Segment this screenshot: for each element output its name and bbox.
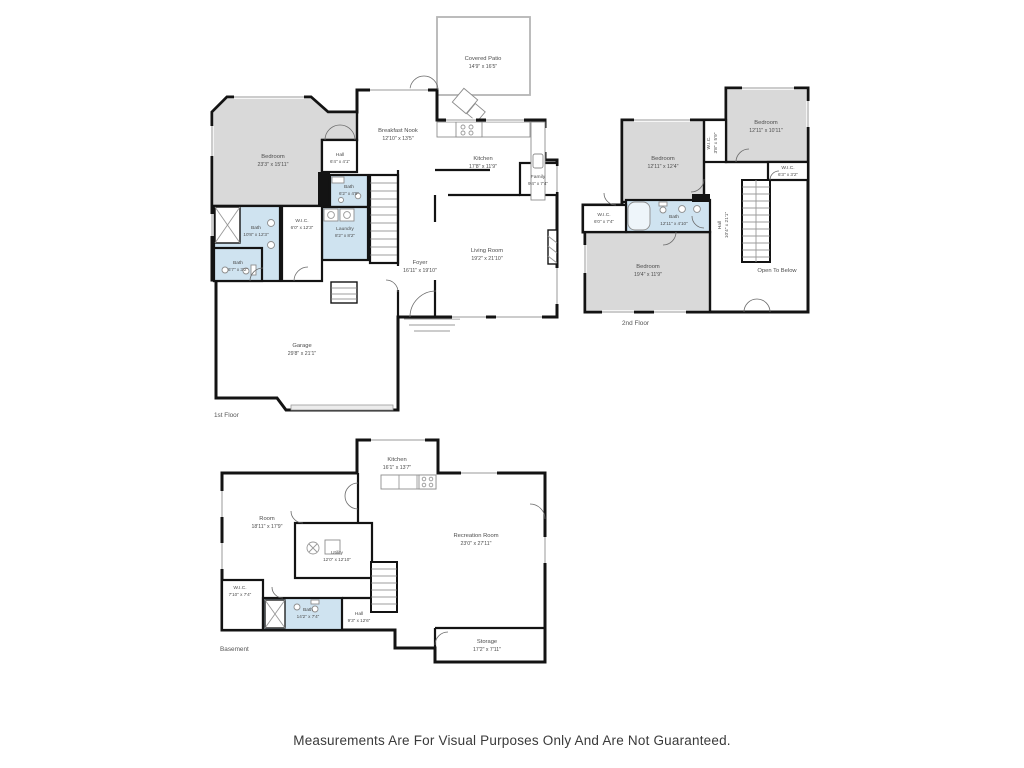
room-label: Foyer <box>413 260 428 266</box>
stairs-icon <box>371 562 397 612</box>
basement-stair-icon <box>331 282 357 303</box>
floor-name: Basement <box>220 646 249 653</box>
room-label: Open To Below <box>757 268 797 274</box>
room-dims: 6'3" x 3'2" <box>778 172 798 177</box>
floor-name: 2nd Floor <box>622 320 650 327</box>
room-label: Bath <box>233 260 243 266</box>
room-dims: 6'0" x 12'3" <box>291 225 314 230</box>
room-label: Garage <box>292 343 311 349</box>
stairs-icon <box>370 175 398 263</box>
room-label: Kitchen <box>473 156 492 162</box>
room-dims: 3'8" x 5'9" <box>713 132 719 153</box>
room-dims: 9'4" x 7'4" <box>528 181 548 186</box>
room-label: Living Room <box>471 248 503 254</box>
porch-steps <box>404 319 460 331</box>
room-dims: 17'2" x 7'11" <box>473 647 501 653</box>
floorplan-page: Covered Patio 14'9" x 16'5" Breakfast No… <box>0 0 1024 768</box>
room-dims: 18'11" x 17'9" <box>252 524 283 530</box>
room-dims: 16'11" x 19'10" <box>403 268 437 274</box>
room-dims: 23'3" x 15'11" <box>258 162 289 168</box>
room-label: W.I.C. <box>597 212 610 218</box>
room-dims: 6'0" x 7'4" <box>594 219 614 224</box>
room-dims: 6'4" x 4'1" <box>330 159 350 164</box>
room-label: Kitchen <box>387 457 406 463</box>
room-label: Bedroom <box>754 120 778 126</box>
room-dims: 23'0" x 27'11" <box>461 541 492 547</box>
wall-mass <box>318 172 330 210</box>
room-dims: 12'11" x 12'4" <box>648 164 679 170</box>
room-label: W.I.C. <box>781 165 794 171</box>
second-floor-plan: Bedroom 12'11" x 12'4" W.I.C. 3'8" x 5'9… <box>578 83 814 335</box>
first-floor-plan: Covered Patio 14'9" x 16'5" Breakfast No… <box>198 8 570 424</box>
room-dims: 6'2" x 4'9" <box>339 191 359 196</box>
room-label: Laundry <box>336 226 354 232</box>
fireplace-icon <box>548 230 557 264</box>
room-label: Bedroom <box>636 264 660 270</box>
room-label: Bath <box>251 225 261 231</box>
room-dims: 19'2" x 21'10" <box>471 256 502 262</box>
room-dims: 16'1" x 13'7" <box>383 465 412 471</box>
room-dims: 17'8" x 11'9" <box>469 164 497 170</box>
basement-plan: Kitchen 16'1" x 13'7" Room 18'11" x 17'9… <box>213 433 553 675</box>
room-label: Utility <box>331 550 344 556</box>
room-dims: 14'9" x 16'5" <box>469 64 498 70</box>
room-dims: 9'3" x 12'6" <box>348 618 371 623</box>
room-label: Family <box>531 174 546 180</box>
kitchen-counter-icon <box>381 475 436 489</box>
disclaimer-text: Measurements Are For Visual Purposes Onl… <box>0 733 1024 748</box>
room-label: Covered Patio <box>465 56 502 62</box>
room-dims: 12'0" x 12'10" <box>323 557 351 562</box>
room-label: Bath <box>669 214 679 220</box>
room-dims: 7'10" x 7'4" <box>229 592 252 597</box>
room-dims: 12'11" x 4'10" <box>660 221 688 226</box>
room-dims: 29'8" x 21'1" <box>288 351 317 357</box>
room-dims: 12'11" x 10'11" <box>749 128 783 134</box>
room-label: Hall <box>336 152 344 158</box>
wall-mass <box>692 194 710 202</box>
wic-room <box>282 206 322 281</box>
room-dims: 6'7" x 3'2" <box>228 267 248 272</box>
room-label: Bath <box>344 184 354 190</box>
room-label: W.I.C. <box>706 136 712 149</box>
room-label: Breakfast Nook <box>378 128 418 134</box>
room-label: Bath <box>303 607 313 613</box>
room-dims: 10'8" x 12'3" <box>243 232 269 237</box>
room-label: Bedroom <box>651 156 675 162</box>
room-label: Hall <box>355 611 363 617</box>
garage-door <box>291 405 393 410</box>
room-label: Bedroom <box>261 154 285 160</box>
floor-name: 1st Floor <box>214 412 240 419</box>
room-label: W.I.C. <box>233 585 246 591</box>
room-label: Hall <box>717 221 723 229</box>
room-dims: 12'10" x 13'5" <box>382 136 413 142</box>
room-label: W.I.C. <box>295 218 308 224</box>
room-dims: 8'2" x 8'2" <box>335 233 355 238</box>
room-dims: 19'4" x 11'9" <box>634 272 662 278</box>
room-label: Storage <box>477 639 497 645</box>
room-dims: 14'2" x 7'4" <box>297 614 320 619</box>
room-dims: 10'4" x 21'1" <box>724 212 730 239</box>
room-label: Room <box>259 516 275 522</box>
stairs-icon <box>742 180 770 262</box>
room-label: Recreation Room <box>453 533 498 539</box>
wic-room <box>768 162 808 180</box>
